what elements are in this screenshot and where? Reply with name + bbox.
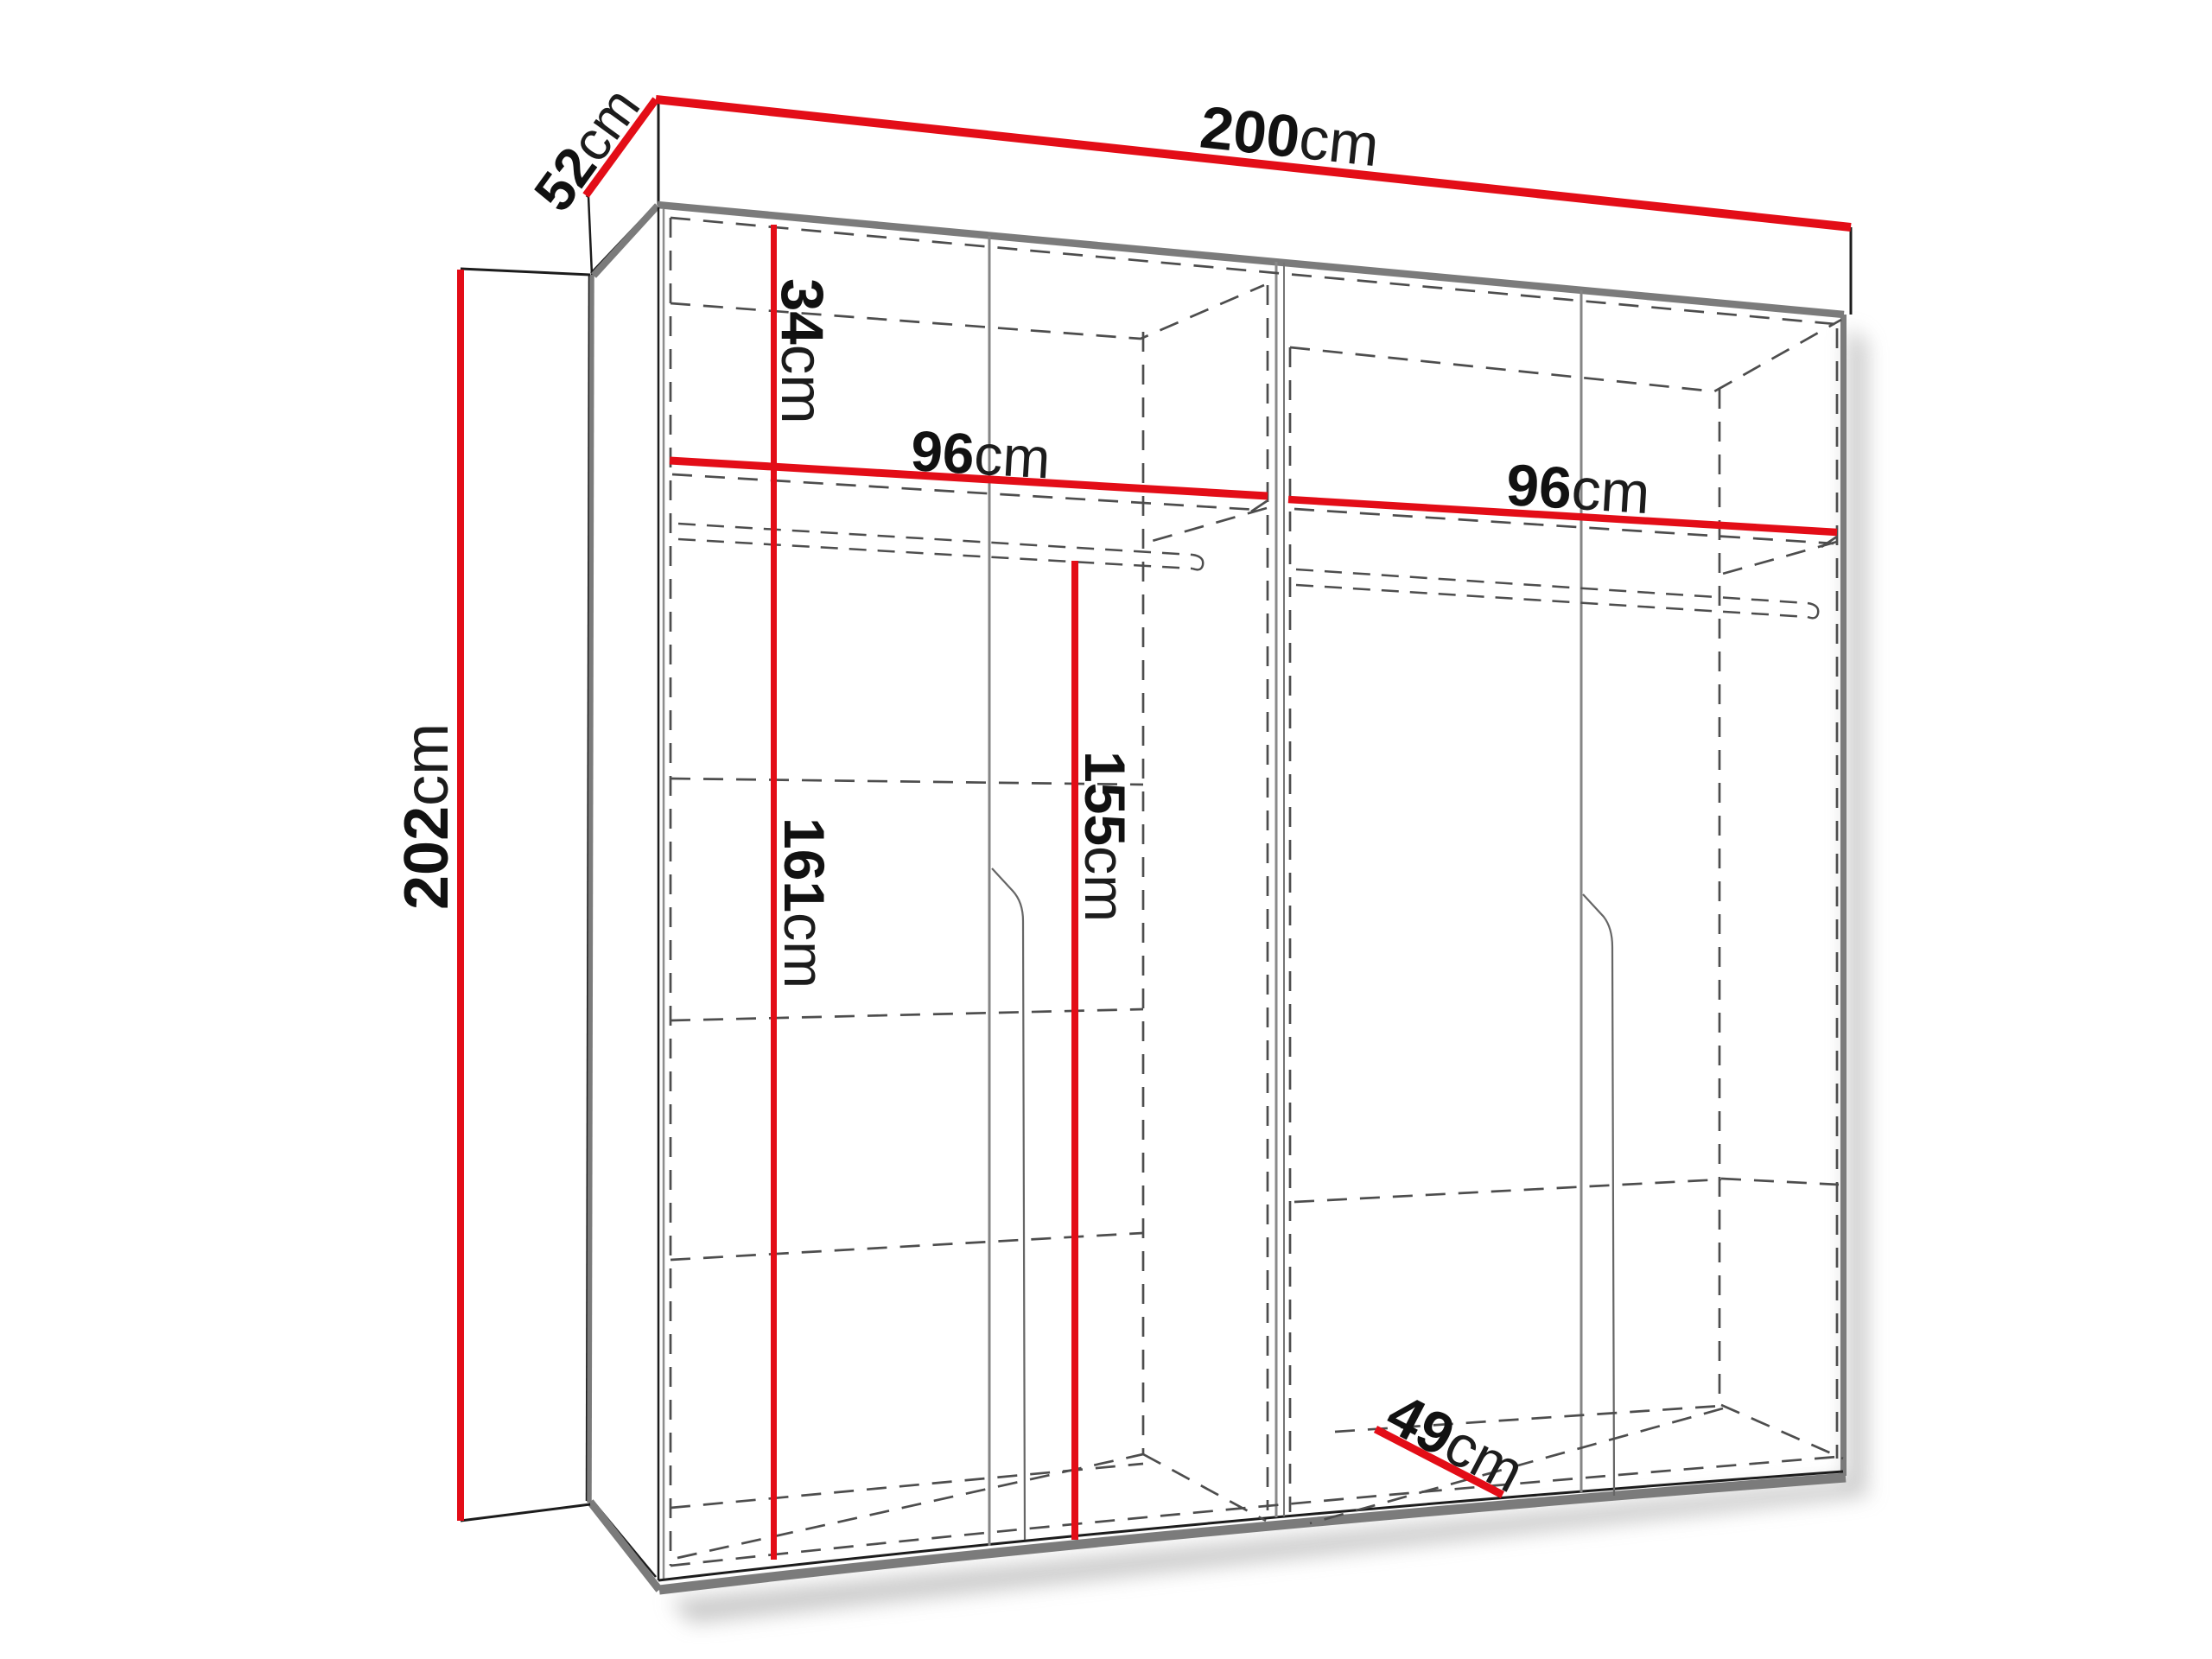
svg-text:200cm: 200cm [1197,93,1382,179]
svg-text:96cm: 96cm [1504,452,1652,526]
svg-text:34cm: 34cm [769,278,836,424]
svg-text:49cm: 49cm [1376,1381,1535,1505]
svg-text:161cm: 161cm [772,817,836,988]
svg-text:96cm: 96cm [909,418,1052,490]
svg-text:155cm: 155cm [1073,751,1137,922]
svg-text:202cm: 202cm [392,723,461,910]
svg-text:52cm: 52cm [522,76,652,222]
